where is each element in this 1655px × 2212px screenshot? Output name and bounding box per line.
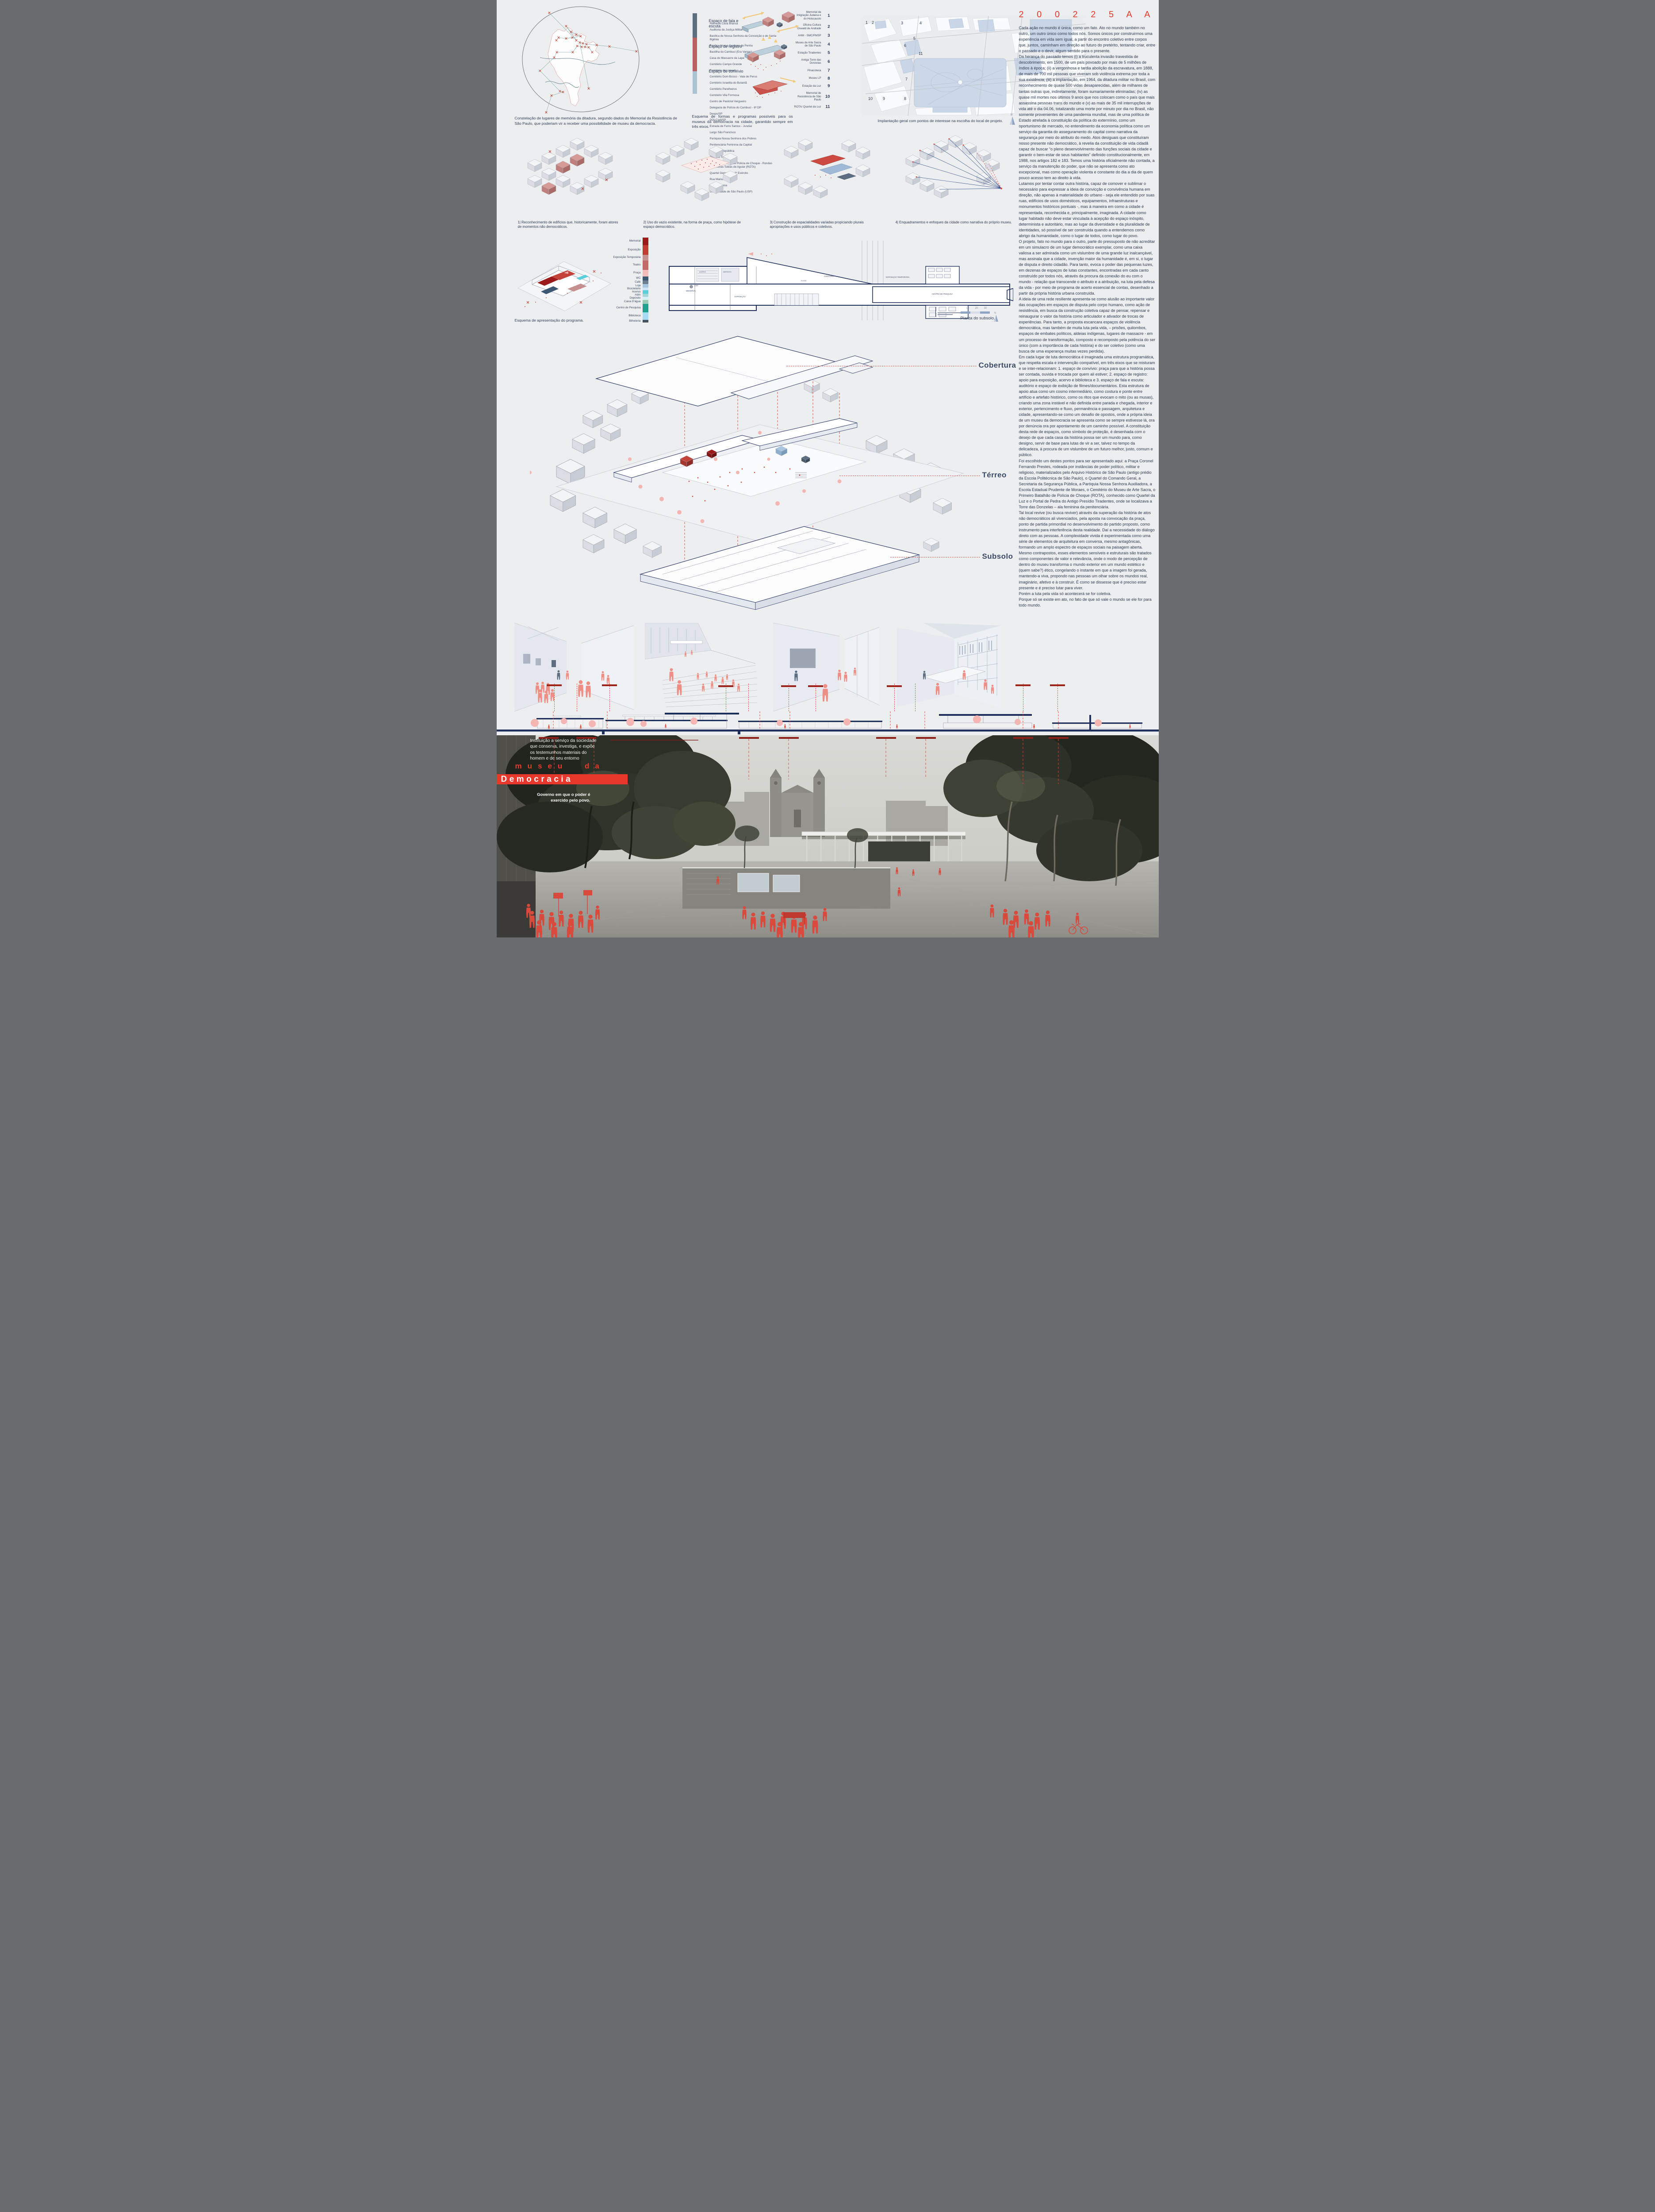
legend-row: Depósito (609, 297, 648, 300)
section-building-mid (605, 715, 728, 728)
connector-bracket (602, 684, 617, 686)
statement-paragraph: Foi escolhido um destes pontos para ser … (1019, 458, 1156, 510)
poi-row: Estação da Luz9 (794, 84, 832, 88)
legend-label: Acervo (609, 291, 643, 293)
legend-swatch (643, 304, 648, 312)
poi-number: 6 (821, 59, 830, 64)
title-red-rule (610, 740, 698, 741)
poi-row: ROTA/ Quartel da Luz11 (794, 104, 832, 109)
connector-line (726, 684, 726, 711)
connector-bracket (808, 685, 823, 687)
constellation-map (514, 4, 647, 118)
dark-slab (837, 173, 856, 180)
legend-row: Praça (609, 270, 648, 276)
north-arrow-icon: N (1009, 112, 1016, 126)
axon-label-terreo: Térreo (982, 471, 1007, 480)
poi-label: AHM - SMC/PMSP (794, 34, 821, 37)
plan-note-line (935, 307, 936, 317)
statement-paragraph: Lutamos por tentar contar outra história… (1019, 181, 1156, 238)
poi-row: AHM - SMC/PMSP3 (794, 33, 832, 38)
svg-text:5: 5 (913, 36, 916, 41)
poi-label: Estação da Luz (794, 84, 821, 88)
connector-bracket (781, 685, 796, 687)
legend-swatch (643, 238, 648, 245)
svg-text:DEPÓSITO: DEPÓSITO (723, 271, 732, 273)
svg-text:ACERVO: ACERVO (699, 271, 706, 273)
entry-code: 2 0 0 2 2 5 A A (1019, 10, 1156, 20)
statement-paragraph: Em cada lugar de luta democrática é imag… (1019, 354, 1156, 458)
program-legend: Memorial Exposição Exposição Temporária … (609, 238, 648, 323)
connector-line (1023, 684, 1023, 711)
analysis-diagram-1 (514, 133, 625, 219)
poi-row: Memorial de Resistência de São Paulo10 (794, 92, 832, 101)
red-slab (811, 155, 845, 165)
scale-tick: 30 (984, 307, 987, 310)
scale-seg (970, 311, 980, 314)
legend-label: Exposição (609, 249, 643, 251)
legend-row: Adm (609, 294, 648, 297)
legend-label: Caixa D'água (609, 300, 643, 303)
svg-text:N: N (1011, 114, 1012, 116)
connector-bracket (547, 684, 562, 686)
perspective-corridor (773, 623, 879, 711)
poi-row: Memorial da Imigração Judaica e do Holoc… (794, 11, 832, 20)
poi-number: 7 (821, 68, 830, 73)
poi-number: 10 (821, 94, 830, 99)
title-museu-da: museu da (515, 762, 605, 771)
scale-tick: 10 (966, 307, 969, 310)
legend-label: WC (609, 277, 643, 280)
statement-paragraph: O projeto, fato no mundo para o outro, p… (1019, 239, 1156, 296)
poi-label: Oficina Cultura Oswald de Andrade (794, 23, 821, 30)
poi-number: 1 (821, 13, 830, 18)
svg-text:11: 11 (919, 51, 923, 56)
legend-swatch (643, 297, 648, 300)
poi-row: Museu LP8 (794, 76, 832, 81)
museum-definition: Instituição a serviço da sociedade que c… (530, 738, 598, 761)
legend-row: Teatro (609, 261, 648, 270)
legend-label: Teatro (609, 264, 643, 266)
svg-text:CENTRO DE PESQUISA: CENTRO DE PESQUISA (932, 293, 953, 295)
legend-label: Biblioteca (609, 315, 643, 317)
poi-row: Antiga Torre das Donzelas6 (794, 58, 832, 65)
svg-text:2: 2 (872, 20, 874, 25)
connector-line (577, 684, 577, 711)
section-building-right (738, 714, 1142, 730)
legend-row: Bilheteria (609, 320, 648, 323)
svg-text:3: 3 (901, 21, 903, 25)
legend-row: Acervo (609, 290, 648, 294)
poi-row: Museu de Arte Sacra de São Paulo4 (794, 41, 832, 48)
analysis-caption-2: 2| Uso do vazio existente, na forma de p… (644, 220, 750, 229)
exploded-axonometric (530, 326, 985, 624)
legend-swatch (643, 300, 648, 304)
poi-number: 9 (821, 84, 830, 88)
long-section (497, 711, 1159, 735)
connector-line (748, 684, 749, 711)
program-scheme-caption: Esquema de formas e programas possíveis … (692, 114, 793, 130)
legend-label: Memorial (609, 240, 643, 242)
poi-label: Museu de Arte Sacra de São Paulo (794, 41, 821, 48)
poi-label: Antiga Torre das Donzelas (794, 58, 821, 65)
connector-line (1057, 684, 1058, 711)
connector-line (915, 684, 916, 711)
poi-label: Memorial da Imigração Judaica e do Holoc… (794, 11, 821, 20)
subsolo-level (640, 526, 919, 610)
connector-line (816, 684, 816, 711)
legend-row: Biblioteca (609, 312, 648, 320)
analysis-diagram-4 (897, 133, 1012, 219)
poi-row: Oficina Cultura Oswald de Andrade2 (794, 23, 832, 30)
subsoil-caption: Planta do subsolo. (961, 316, 995, 321)
statement-paragraph: Cada ação no mundo é única, como um fato… (1019, 25, 1156, 54)
poi-row: Estação Tiradentes5 (794, 50, 832, 55)
perspective-gallery (514, 623, 634, 711)
plaza-void (682, 157, 729, 173)
svg-text:-3.00: -3.00 (694, 284, 698, 287)
poi-number: 4 (821, 42, 830, 47)
legend-swatch (643, 290, 648, 294)
scale-bar (961, 311, 990, 314)
legend-label: Depósito (609, 297, 643, 300)
statement-text: Cada ação no mundo é única, como um fato… (1019, 25, 1156, 608)
statement-paragraph: Tal local revive (ou busca reviver) atra… (1019, 510, 1156, 591)
svg-text:MEMORIAL: MEMORIAL (686, 290, 696, 292)
title-democracia: Democracia (497, 775, 573, 784)
perspective-library (897, 623, 1001, 711)
place-item: Centro de Pastoral Vergueiro (710, 100, 781, 104)
svg-text:EXPOSIÇÃO TEMPORÁRIA: EXPOSIÇÃO TEMPORÁRIA (886, 276, 910, 278)
legend-label: Exposição Temporária (609, 256, 643, 259)
connector-bracket (1015, 684, 1031, 686)
statement-paragraph: A ideia de uma rede resiliente apresenta… (1019, 296, 1156, 354)
statement-paragraph: Porém a luta pela vida só acontecerá se … (1019, 591, 1156, 597)
connector-bracket (1050, 684, 1065, 686)
legend-swatch (643, 255, 648, 261)
constellation-caption: Constelação de lugares de memória da dit… (515, 116, 679, 126)
analysis-caption-1: 1| Reconhecimento de edifícios que, hist… (518, 220, 622, 229)
leader-terreo (839, 476, 980, 476)
svg-text:N: N (994, 312, 996, 315)
scale-seg (961, 311, 970, 314)
connector-bracket (887, 685, 902, 687)
poi-label: Memorial de Resistência de São Paulo (794, 92, 821, 101)
legend-row: WC (609, 276, 648, 280)
legend-swatch (643, 245, 648, 255)
legend-row: Caixa D'água (609, 300, 648, 304)
svg-text:10: 10 (868, 96, 873, 101)
sunken-court (682, 867, 890, 909)
poi-label: Pinacoteca (794, 69, 821, 72)
legend-swatch (643, 294, 648, 297)
statement-column: 2 0 0 2 2 5 A A Cada ação no mundo é úni… (1019, 10, 1156, 608)
axis-bar-fala (693, 13, 697, 38)
poi-row: Pinacoteca7 (794, 68, 832, 73)
axon-label-cobertura: Cobertura (979, 361, 1016, 370)
legend-swatch (643, 261, 648, 270)
program-axon (514, 236, 614, 316)
analysis-diagram-3 (771, 133, 881, 219)
statement-paragraph: Da herança do passado temos (i) a trucul… (1019, 54, 1156, 181)
connector-line (894, 684, 895, 711)
poi-label: Estação Tiradentes (794, 51, 821, 54)
svg-text:1: 1 (866, 20, 868, 25)
analysis-caption-3: 3| Construção de espacialidades variadas… (770, 220, 878, 229)
blue-slab (820, 164, 852, 174)
north-arrow-icon: N (993, 311, 999, 323)
svg-text:EXPOSIÇÃO: EXPOSIÇÃO (735, 296, 746, 298)
poi-list: Memorial da Imigração Judaica e do Holoc… (794, 11, 832, 112)
poi-number: 2 (821, 24, 830, 29)
title-band: Democracia (497, 774, 628, 784)
poi-number: 3 (821, 33, 830, 38)
connector-line (789, 684, 789, 711)
place-item: Delegacia de Polícia do Cambuci - 6ª DP (710, 106, 781, 110)
plan-note-microtext (938, 312, 961, 313)
legend-row: Exposição (609, 245, 648, 255)
connector-line (554, 684, 555, 711)
svg-text:AUDITÓRIO: AUDITÓRIO (824, 275, 835, 277)
perspective-stair (645, 623, 758, 711)
svg-text:8: 8 (904, 96, 906, 101)
legend-swatch (643, 312, 648, 320)
leader-cobertura (786, 366, 977, 366)
poi-number: 5 (821, 50, 830, 55)
legend-row: Exposição Temporária (609, 255, 648, 261)
site-plan-caption: Implantação geral com pontos de interess… (878, 119, 1007, 124)
poi-label: Museu LP (794, 77, 821, 80)
svg-text:4: 4 (919, 21, 922, 25)
poi-number: 11 (821, 104, 830, 109)
program-axon-caption: Esquema de apresentação do programa. (515, 318, 610, 323)
presentation-board: Constelação de lugares de memória da dit… (497, 0, 1159, 937)
axis-bar-convivio (693, 71, 697, 94)
poi-number: 8 (821, 76, 830, 81)
svg-text:7: 7 (905, 77, 908, 81)
svg-text:6: 6 (904, 43, 906, 48)
democracy-definition: Governo em que o poder é exercido pelo p… (535, 792, 590, 804)
plan-note-microtext (938, 314, 953, 315)
axon-label-subsolo: Subsolo (982, 552, 1013, 561)
svg-text:9: 9 (883, 96, 885, 101)
legend-swatch (643, 276, 648, 280)
legend-label: Bilheteria (609, 320, 643, 323)
program-axis-bar (693, 13, 697, 94)
analysis-caption-4: 4| Enquadramentos e enfoques da cidade c… (896, 220, 1016, 225)
people-group (669, 650, 740, 695)
connector-bracket (718, 685, 733, 687)
legend-row: Centro de Pesquisa (609, 304, 648, 312)
legend-swatch (643, 280, 648, 284)
legend-row: Café (609, 280, 648, 284)
analysis-diagram-2 (643, 133, 753, 219)
legend-label: Café (609, 281, 643, 284)
statement-paragraph: Porque só se existe em ato, no fato de q… (1019, 597, 1156, 608)
legend-label: Praça (609, 272, 643, 274)
axis-bar-registro (693, 38, 697, 71)
subsoil-plan: -3.00 MEMORIAL EXPOSIÇÃO ACERVO DEPÓSITO… (668, 241, 1013, 320)
legend-label: Centro de Pesquisa (609, 307, 643, 309)
legend-swatch (643, 270, 648, 276)
legend-swatch (643, 320, 648, 323)
connector-line (609, 684, 610, 711)
legend-swatch (643, 284, 648, 288)
scale-seg (980, 311, 990, 314)
poi-label: ROTA/ Quartel da Luz (794, 105, 821, 108)
legend-row: Memorial (609, 238, 648, 245)
leader-subsolo (890, 557, 980, 557)
scale-tick: 20 (975, 307, 978, 310)
svg-text:FOYER: FOYER (801, 280, 807, 282)
